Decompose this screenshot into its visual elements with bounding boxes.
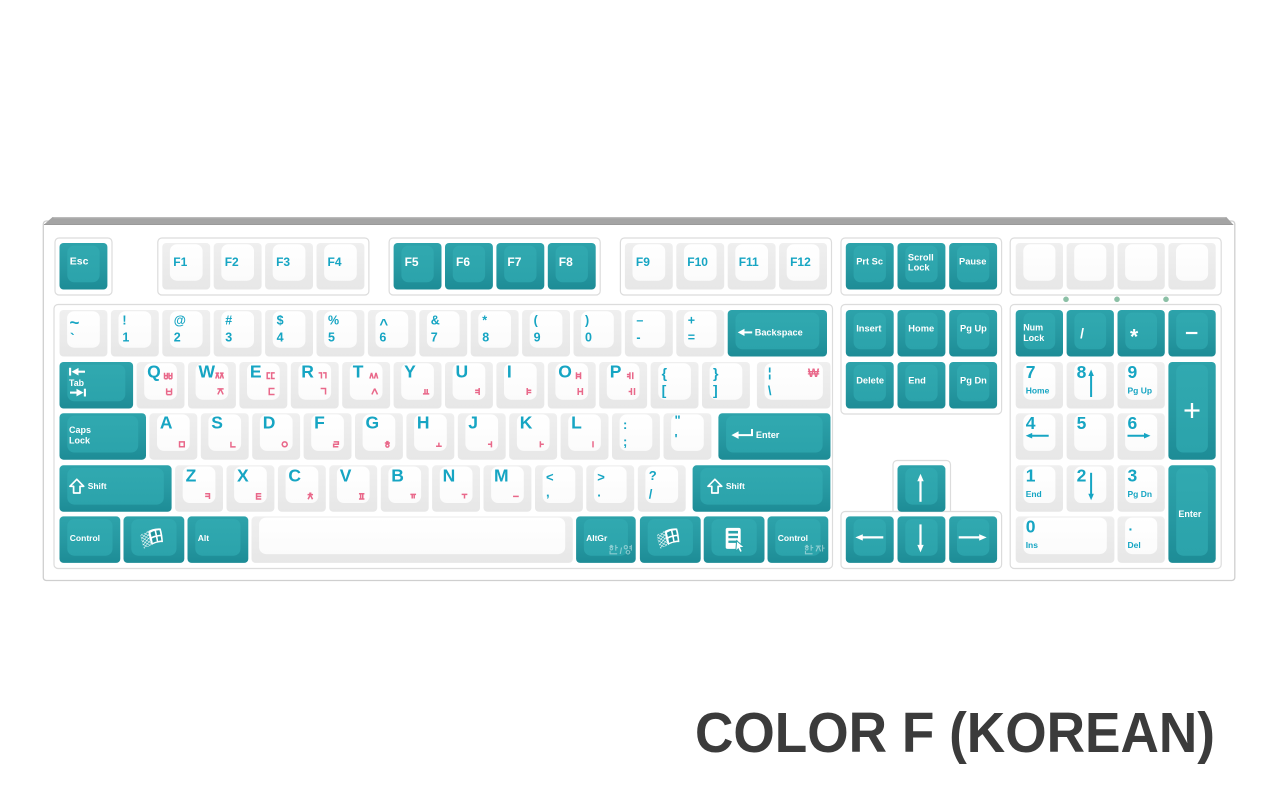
svg-text::: :	[623, 417, 627, 432]
svg-text:2: 2	[174, 331, 181, 345]
svg-text:+: +	[688, 314, 695, 328]
svg-text:F2: F2	[225, 255, 239, 269]
svg-text:COLOR F (KOREAN): COLOR F (KOREAN)	[695, 701, 1215, 765]
svg-text:Insert: Insert	[856, 323, 881, 333]
svg-text:Q: Q	[147, 362, 161, 382]
svg-text:Shift: Shift	[726, 481, 745, 491]
svg-text:": "	[675, 413, 681, 428]
svg-text:F7: F7	[507, 255, 521, 269]
svg-text:8: 8	[482, 331, 489, 345]
svg-text:F6: F6	[456, 255, 470, 269]
svg-text:*: *	[1130, 326, 1139, 349]
svg-text:/: /	[649, 486, 653, 501]
svg-text:9: 9	[534, 331, 541, 345]
svg-text:U: U	[456, 362, 469, 382]
svg-text:Enter: Enter	[1178, 509, 1202, 519]
svg-text:Y: Y	[404, 362, 416, 382]
svg-text:W: W	[199, 362, 216, 382]
svg-text:P: P	[610, 362, 622, 382]
svg-text:3: 3	[1128, 465, 1138, 485]
svg-text:L: L	[571, 413, 582, 433]
svg-text:Control: Control	[778, 533, 808, 543]
svg-text:X: X	[237, 465, 249, 485]
svg-text:5: 5	[328, 331, 335, 345]
svg-text:A: A	[160, 413, 173, 433]
svg-text:F3: F3	[276, 255, 290, 269]
svg-text:Pg Dn: Pg Dn	[960, 375, 987, 385]
svg-text:Scroll: Scroll	[908, 253, 934, 263]
svg-text:C: C	[288, 465, 301, 485]
svg-text:Z: Z	[186, 465, 197, 485]
svg-text:F: F	[314, 413, 325, 433]
svg-text:F5: F5	[405, 255, 419, 269]
svg-text:Pg Up: Pg Up	[960, 323, 987, 333]
svg-text:F10: F10	[687, 255, 708, 269]
svg-text:Pg Dn: Pg Dn	[1128, 489, 1153, 499]
svg-text:H: H	[417, 413, 430, 433]
svg-text:Backspace: Backspace	[755, 328, 803, 338]
svg-text:;: ;	[623, 434, 627, 449]
svg-text:R: R	[301, 362, 314, 382]
svg-text:M: M	[494, 465, 509, 485]
svg-text:B: B	[391, 465, 404, 485]
svg-text:–: –	[636, 314, 643, 328]
svg-text:₩: ₩	[808, 366, 820, 380]
svg-text:Alt: Alt	[198, 533, 210, 543]
svg-text:1: 1	[122, 331, 129, 345]
svg-text:Caps: Caps	[69, 425, 91, 435]
svg-text:Home: Home	[1026, 386, 1050, 396]
svg-text:0: 0	[585, 331, 592, 345]
svg-text:&: &	[431, 314, 440, 328]
svg-text:F11: F11	[739, 255, 759, 269]
svg-text:Enter: Enter	[756, 430, 780, 440]
svg-text:7: 7	[1026, 362, 1036, 382]
svg-text:6: 6	[379, 331, 386, 345]
svg-text:Pg Up: Pg Up	[1128, 386, 1153, 396]
svg-text:Prt Sc: Prt Sc	[856, 256, 883, 266]
svg-text:1: 1	[1026, 465, 1036, 485]
svg-text:Pause: Pause	[959, 256, 986, 266]
svg-text:7: 7	[431, 331, 438, 345]
svg-text:AltGr: AltGr	[586, 533, 608, 543]
svg-text:\: \	[768, 383, 772, 398]
svg-text:V: V	[340, 465, 352, 485]
svg-text:Del: Del	[1128, 540, 1141, 550]
svg-text:=: =	[688, 331, 695, 345]
svg-text:Lock: Lock	[908, 263, 931, 273]
svg-text:F1: F1	[173, 255, 187, 269]
svg-text:G: G	[366, 413, 380, 433]
svg-text:End: End	[908, 375, 926, 385]
svg-text:D: D	[263, 413, 276, 433]
svg-text:5: 5	[1077, 413, 1087, 433]
svg-text:`: `	[70, 330, 75, 346]
svg-text:Delete: Delete	[856, 375, 884, 385]
svg-text:N: N	[443, 465, 456, 485]
svg-text:{: {	[662, 365, 668, 381]
svg-text:Control: Control	[70, 533, 100, 543]
svg-text:$: $	[277, 314, 284, 328]
svg-text:?: ?	[649, 468, 657, 483]
svg-text:I: I	[507, 362, 512, 382]
svg-text:9: 9	[1128, 362, 1138, 382]
svg-text:Num: Num	[1023, 323, 1043, 333]
svg-text:Esc: Esc	[70, 256, 89, 268]
svg-text:E: E	[250, 362, 262, 382]
svg-text:S: S	[211, 413, 223, 433]
svg-text:Home: Home	[908, 323, 934, 333]
svg-text:%: %	[328, 314, 339, 328]
svg-text:': '	[675, 431, 678, 446]
svg-text:4: 4	[277, 331, 284, 345]
svg-text:F8: F8	[559, 255, 573, 269]
svg-text:): )	[585, 314, 589, 328]
svg-text:Ins: Ins	[1026, 540, 1039, 550]
svg-text:Lock: Lock	[69, 436, 91, 446]
svg-text:End: End	[1026, 489, 1042, 499]
svg-text:3: 3	[225, 331, 232, 345]
svg-text:6: 6	[1128, 413, 1138, 433]
svg-text:,: ,	[546, 484, 550, 499]
svg-text:J: J	[468, 413, 478, 433]
svg-text:[: [	[662, 382, 667, 398]
svg-text:F9: F9	[636, 255, 650, 269]
svg-text:Shift: Shift	[88, 481, 107, 491]
svg-text:]: ]	[713, 382, 718, 398]
svg-text:4: 4	[1026, 413, 1036, 433]
svg-text:-: -	[636, 331, 640, 345]
svg-text:@: @	[174, 314, 186, 328]
svg-text:F4: F4	[328, 255, 342, 269]
svg-text:#: #	[225, 314, 232, 328]
svg-text:<: <	[546, 469, 554, 484]
svg-text:.: .	[597, 484, 601, 499]
svg-text:Tab: Tab	[69, 378, 85, 388]
svg-text:Lock: Lock	[1023, 333, 1045, 343]
svg-text:F12: F12	[790, 255, 811, 269]
svg-text:*: *	[482, 314, 487, 328]
svg-text:/: /	[1080, 325, 1084, 341]
svg-text:8: 8	[1077, 362, 1087, 382]
svg-text:T: T	[353, 362, 364, 382]
svg-text:!: !	[122, 314, 126, 328]
svg-text:>: >	[597, 469, 605, 484]
svg-text:¦: ¦	[768, 365, 772, 380]
svg-text:}: }	[713, 365, 719, 381]
svg-text:2: 2	[1077, 465, 1087, 485]
svg-text:.: .	[1129, 517, 1133, 533]
svg-text:O: O	[558, 362, 572, 382]
svg-text:K: K	[520, 413, 533, 433]
svg-text:0: 0	[1026, 516, 1036, 536]
